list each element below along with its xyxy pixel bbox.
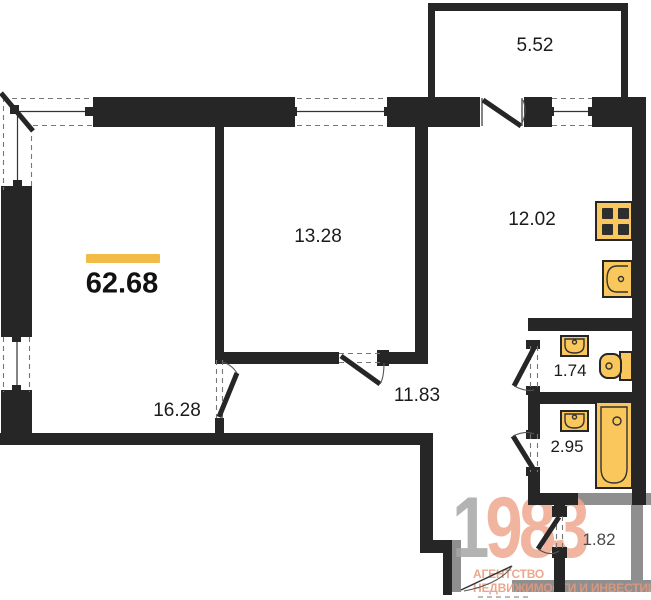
door-jamb: [552, 506, 567, 517]
entrance-door: [461, 566, 532, 597]
burner: [618, 208, 629, 219]
balcony-door: [482, 98, 525, 126]
wall: [528, 318, 646, 331]
balcony-wall: [621, 3, 628, 97]
window-end: [12, 333, 21, 342]
bath-sink-icon: [561, 411, 588, 431]
burner: [602, 224, 613, 235]
room-living-region: [32, 127, 215, 433]
door-jamb: [552, 547, 567, 558]
window-end: [10, 105, 19, 114]
window-end: [588, 107, 597, 116]
wall: [415, 127, 428, 364]
room-storage-region: [565, 505, 631, 580]
window-end: [12, 385, 21, 394]
door-leaf: [538, 517, 559, 549]
wall: [1, 186, 32, 337]
wall: [443, 553, 452, 595]
window-end: [288, 107, 297, 116]
wall: [420, 445, 433, 553]
stove-icon: [596, 202, 632, 240]
burner: [618, 224, 629, 235]
door-jamb: [377, 350, 389, 366]
wall: [420, 540, 452, 553]
window-end: [13, 180, 22, 189]
window-top-1: [288, 99, 393, 126]
balcony-wall: [428, 3, 628, 11]
bathtub-icon: [596, 402, 632, 488]
wall: [215, 352, 339, 364]
window-end: [85, 107, 94, 116]
door-leaf: [483, 100, 521, 126]
burner: [602, 208, 613, 219]
kitchen-sink-icon: [603, 261, 632, 297]
toilet-icon: [600, 352, 632, 380]
wall: [528, 493, 578, 505]
room-hallway-region: [224, 364, 528, 433]
room-bedroom-region: [224, 127, 415, 352]
window-left: [4, 333, 30, 394]
wall: [93, 97, 295, 127]
apartment-drawing: [0, 0, 651, 600]
balcony-wall: [428, 3, 435, 97]
wall: [215, 418, 224, 445]
window-end: [384, 107, 393, 116]
window-end: [545, 107, 554, 116]
wall: [387, 97, 480, 127]
door-leaf: [461, 566, 512, 590]
floor-plan: 1 983 АГЕНТСТВО НЕДВИЖИМОСТИ И ИНВЕСТИЦИ…: [0, 0, 651, 600]
toilet-bowl: [600, 354, 621, 378]
wall: [215, 127, 224, 360]
window-top-2: [545, 99, 597, 126]
wall: [632, 97, 646, 505]
room-balcony-region: [435, 12, 621, 97]
wc-sink-icon: [561, 336, 588, 356]
